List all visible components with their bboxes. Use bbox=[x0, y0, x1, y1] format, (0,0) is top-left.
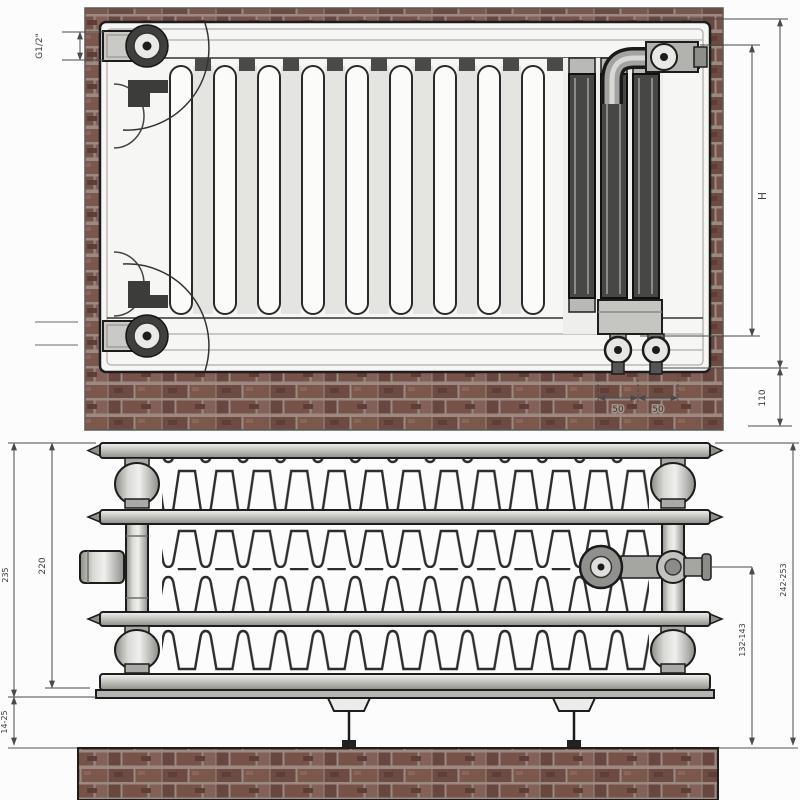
fin-row-3 bbox=[162, 568, 649, 612]
dim-label-50b: 50 bbox=[652, 405, 664, 415]
side-connection-stub bbox=[80, 551, 124, 583]
panel-slots bbox=[170, 66, 544, 314]
panel-slot bbox=[434, 66, 456, 314]
top-left-plug bbox=[103, 25, 168, 67]
floor-slab bbox=[78, 748, 718, 800]
panel-slot bbox=[258, 66, 280, 314]
wall-bracket-right bbox=[553, 698, 595, 747]
panel-bar bbox=[100, 674, 710, 690]
valve-tail-cap bbox=[702, 554, 711, 580]
dim-label-242-253: 242-253 bbox=[779, 563, 788, 596]
bottom-left-plug bbox=[103, 315, 168, 357]
drawing-canvas: G1/2" H 110 50 50 bbox=[0, 0, 800, 800]
dim-label-14-25: 14-25 bbox=[0, 710, 9, 733]
wall-bracket-left bbox=[328, 698, 370, 747]
convector-fins bbox=[162, 458, 649, 674]
valve-pipes bbox=[569, 74, 659, 298]
panel-bar bbox=[100, 443, 710, 458]
header-notches bbox=[195, 58, 563, 71]
base-flange bbox=[96, 690, 714, 698]
panel-slot bbox=[346, 66, 368, 314]
dim-label-132-143: 132-143 bbox=[738, 623, 747, 656]
panel-slot bbox=[390, 66, 412, 314]
dim-label-110: 110 bbox=[758, 389, 768, 406]
left-extension-lines bbox=[35, 322, 78, 345]
dim-label-220: 220 bbox=[38, 557, 48, 574]
dim-label-height: H bbox=[757, 192, 769, 200]
panel-slot bbox=[214, 66, 236, 314]
panel-slot bbox=[170, 66, 192, 314]
panel-slot bbox=[302, 66, 324, 314]
bottom-nipple bbox=[612, 362, 624, 374]
panel-slot bbox=[478, 66, 500, 314]
dim-label-50a: 50 bbox=[612, 405, 624, 415]
front-view: G1/2" H 110 50 50 bbox=[35, 8, 792, 430]
panel-slot bbox=[522, 66, 544, 314]
fin-row-1 bbox=[162, 458, 649, 510]
panel-bar bbox=[100, 510, 710, 524]
fin-row-2 bbox=[162, 524, 649, 568]
dim-label-235: 235 bbox=[1, 567, 10, 582]
fin-row-4 bbox=[162, 626, 649, 674]
plan-view: 220 235 14-25 132-143 242-253 bbox=[0, 443, 799, 800]
dim-label-thread: G1/2" bbox=[35, 33, 45, 59]
panel-bar bbox=[100, 612, 710, 626]
radiator-technical-drawing: G1/2" H 110 50 50 bbox=[0, 0, 800, 800]
